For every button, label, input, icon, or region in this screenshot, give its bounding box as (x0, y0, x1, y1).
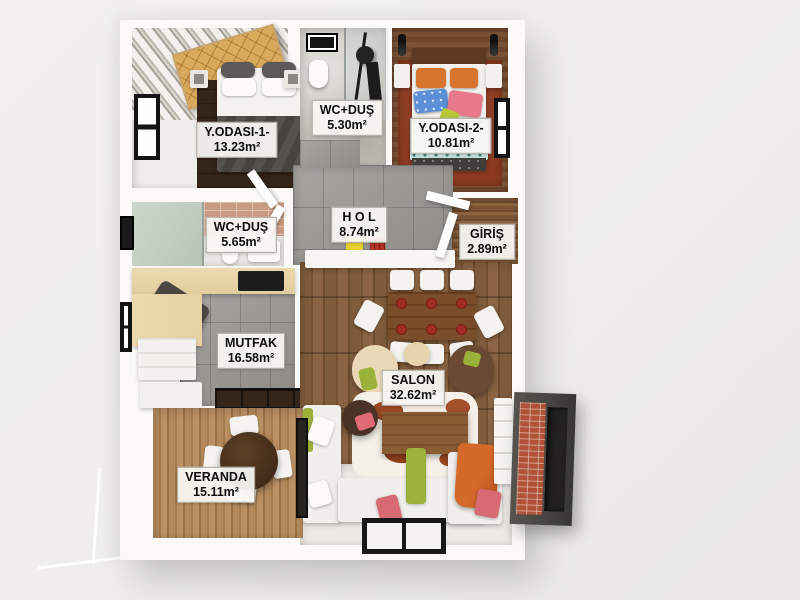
dining-chair (420, 270, 444, 290)
room-name: SALON (390, 373, 437, 388)
room-name: WC+DUŞ (320, 103, 375, 118)
salon-pink-pillow-right (474, 488, 502, 519)
room-area: 15.11m² (185, 485, 247, 499)
room-area: 32.62m² (390, 388, 437, 402)
label-wc-top: WC+DUŞ 5.30m² (312, 100, 383, 136)
plate (396, 324, 407, 335)
bedroom1-lamp-left (190, 70, 208, 88)
bedroom1-pillow-white-left (222, 78, 256, 96)
room-area: 5.30m² (320, 118, 375, 132)
plate (456, 324, 467, 335)
label-giris: GİRİŞ 2.89m² (459, 224, 515, 260)
salon-pouf (404, 342, 430, 366)
room-name: H O L (339, 210, 379, 225)
label-salon: SALON 32.62m² (382, 370, 445, 406)
bedroom2-nightstand-right (486, 64, 502, 88)
plate (426, 324, 437, 335)
bedroom1-pillow-grey-left (221, 62, 255, 78)
label-bedroom2: Y.ODASI-2- 10.81m² (410, 118, 491, 154)
fireplace-opening (544, 407, 568, 512)
salon-pass-counter (305, 250, 455, 268)
floorplan-scene: Y.ODASI-1- 13.23m² WC+DUŞ 5.30m² Y.ODASI… (0, 0, 800, 600)
label-veranda: VERANDA 15.11m² (177, 467, 255, 503)
room-area: 8.74m² (339, 225, 379, 239)
salon-wall-shelf (494, 398, 512, 484)
room-name: VERANDA (185, 470, 247, 485)
dining-chair (390, 270, 414, 290)
label-bedroom1: Y.ODASI-1- 13.23m² (196, 122, 277, 158)
wc-top-toilet (309, 60, 328, 88)
bedroom1-window (134, 94, 160, 160)
wc-mid-shower-area (132, 202, 204, 266)
label-hol: H O L 8.74m² (331, 207, 387, 243)
room-name: MUTFAK (225, 336, 277, 351)
plate (426, 298, 437, 309)
dining-table (388, 292, 476, 340)
bedroom2-lamp-right (490, 34, 498, 56)
room-area: 2.89m² (467, 242, 507, 256)
room-name: GİRİŞ (467, 227, 507, 242)
room-area: 10.81m² (418, 136, 483, 150)
room-name: Y.ODASI-2- (418, 121, 483, 136)
bedroom2-nightstand-left (394, 64, 410, 88)
wc-mid-window (120, 216, 134, 250)
label-mutfak: MUTFAK 16.58m² (217, 333, 285, 369)
fireplace-brick-column (516, 402, 546, 515)
mutfak-fridge (140, 382, 202, 408)
room-name: WC+DUŞ (214, 220, 269, 235)
label-wc-mid: WC+DUŞ 5.65m² (206, 217, 277, 253)
hol-corridor (300, 140, 360, 168)
salon-entrance-door (362, 518, 446, 554)
bedroom2-headboard (412, 48, 486, 64)
room-area: 16.58m² (225, 351, 277, 365)
mutfak-veranda-steps (215, 388, 300, 410)
bedroom2-pillow-orange-right (450, 68, 478, 88)
mutfak-window (120, 302, 132, 352)
salon-green-lounge-pad (406, 448, 426, 504)
plate (396, 298, 407, 309)
patio-edge-vertical (92, 468, 102, 564)
dining-chair (450, 270, 474, 290)
plate (456, 298, 467, 309)
wc-top-skylight (306, 33, 338, 52)
bedroom2-window (494, 98, 510, 158)
veranda-sliding-door (296, 418, 308, 518)
bedroom1-floor (132, 28, 288, 188)
salon-coffee-table (382, 412, 468, 454)
fireplace (510, 392, 577, 526)
room-area: 5.65m² (214, 235, 269, 249)
bedroom2-lamp-left (398, 34, 406, 56)
mutfak-cabinets (138, 338, 196, 380)
room-name: Y.ODASI-1- (204, 125, 269, 140)
room-area: 13.23m² (204, 140, 269, 154)
mutfak-cooktop (238, 271, 284, 291)
bedroom2-pillow-orange-left (416, 68, 446, 88)
